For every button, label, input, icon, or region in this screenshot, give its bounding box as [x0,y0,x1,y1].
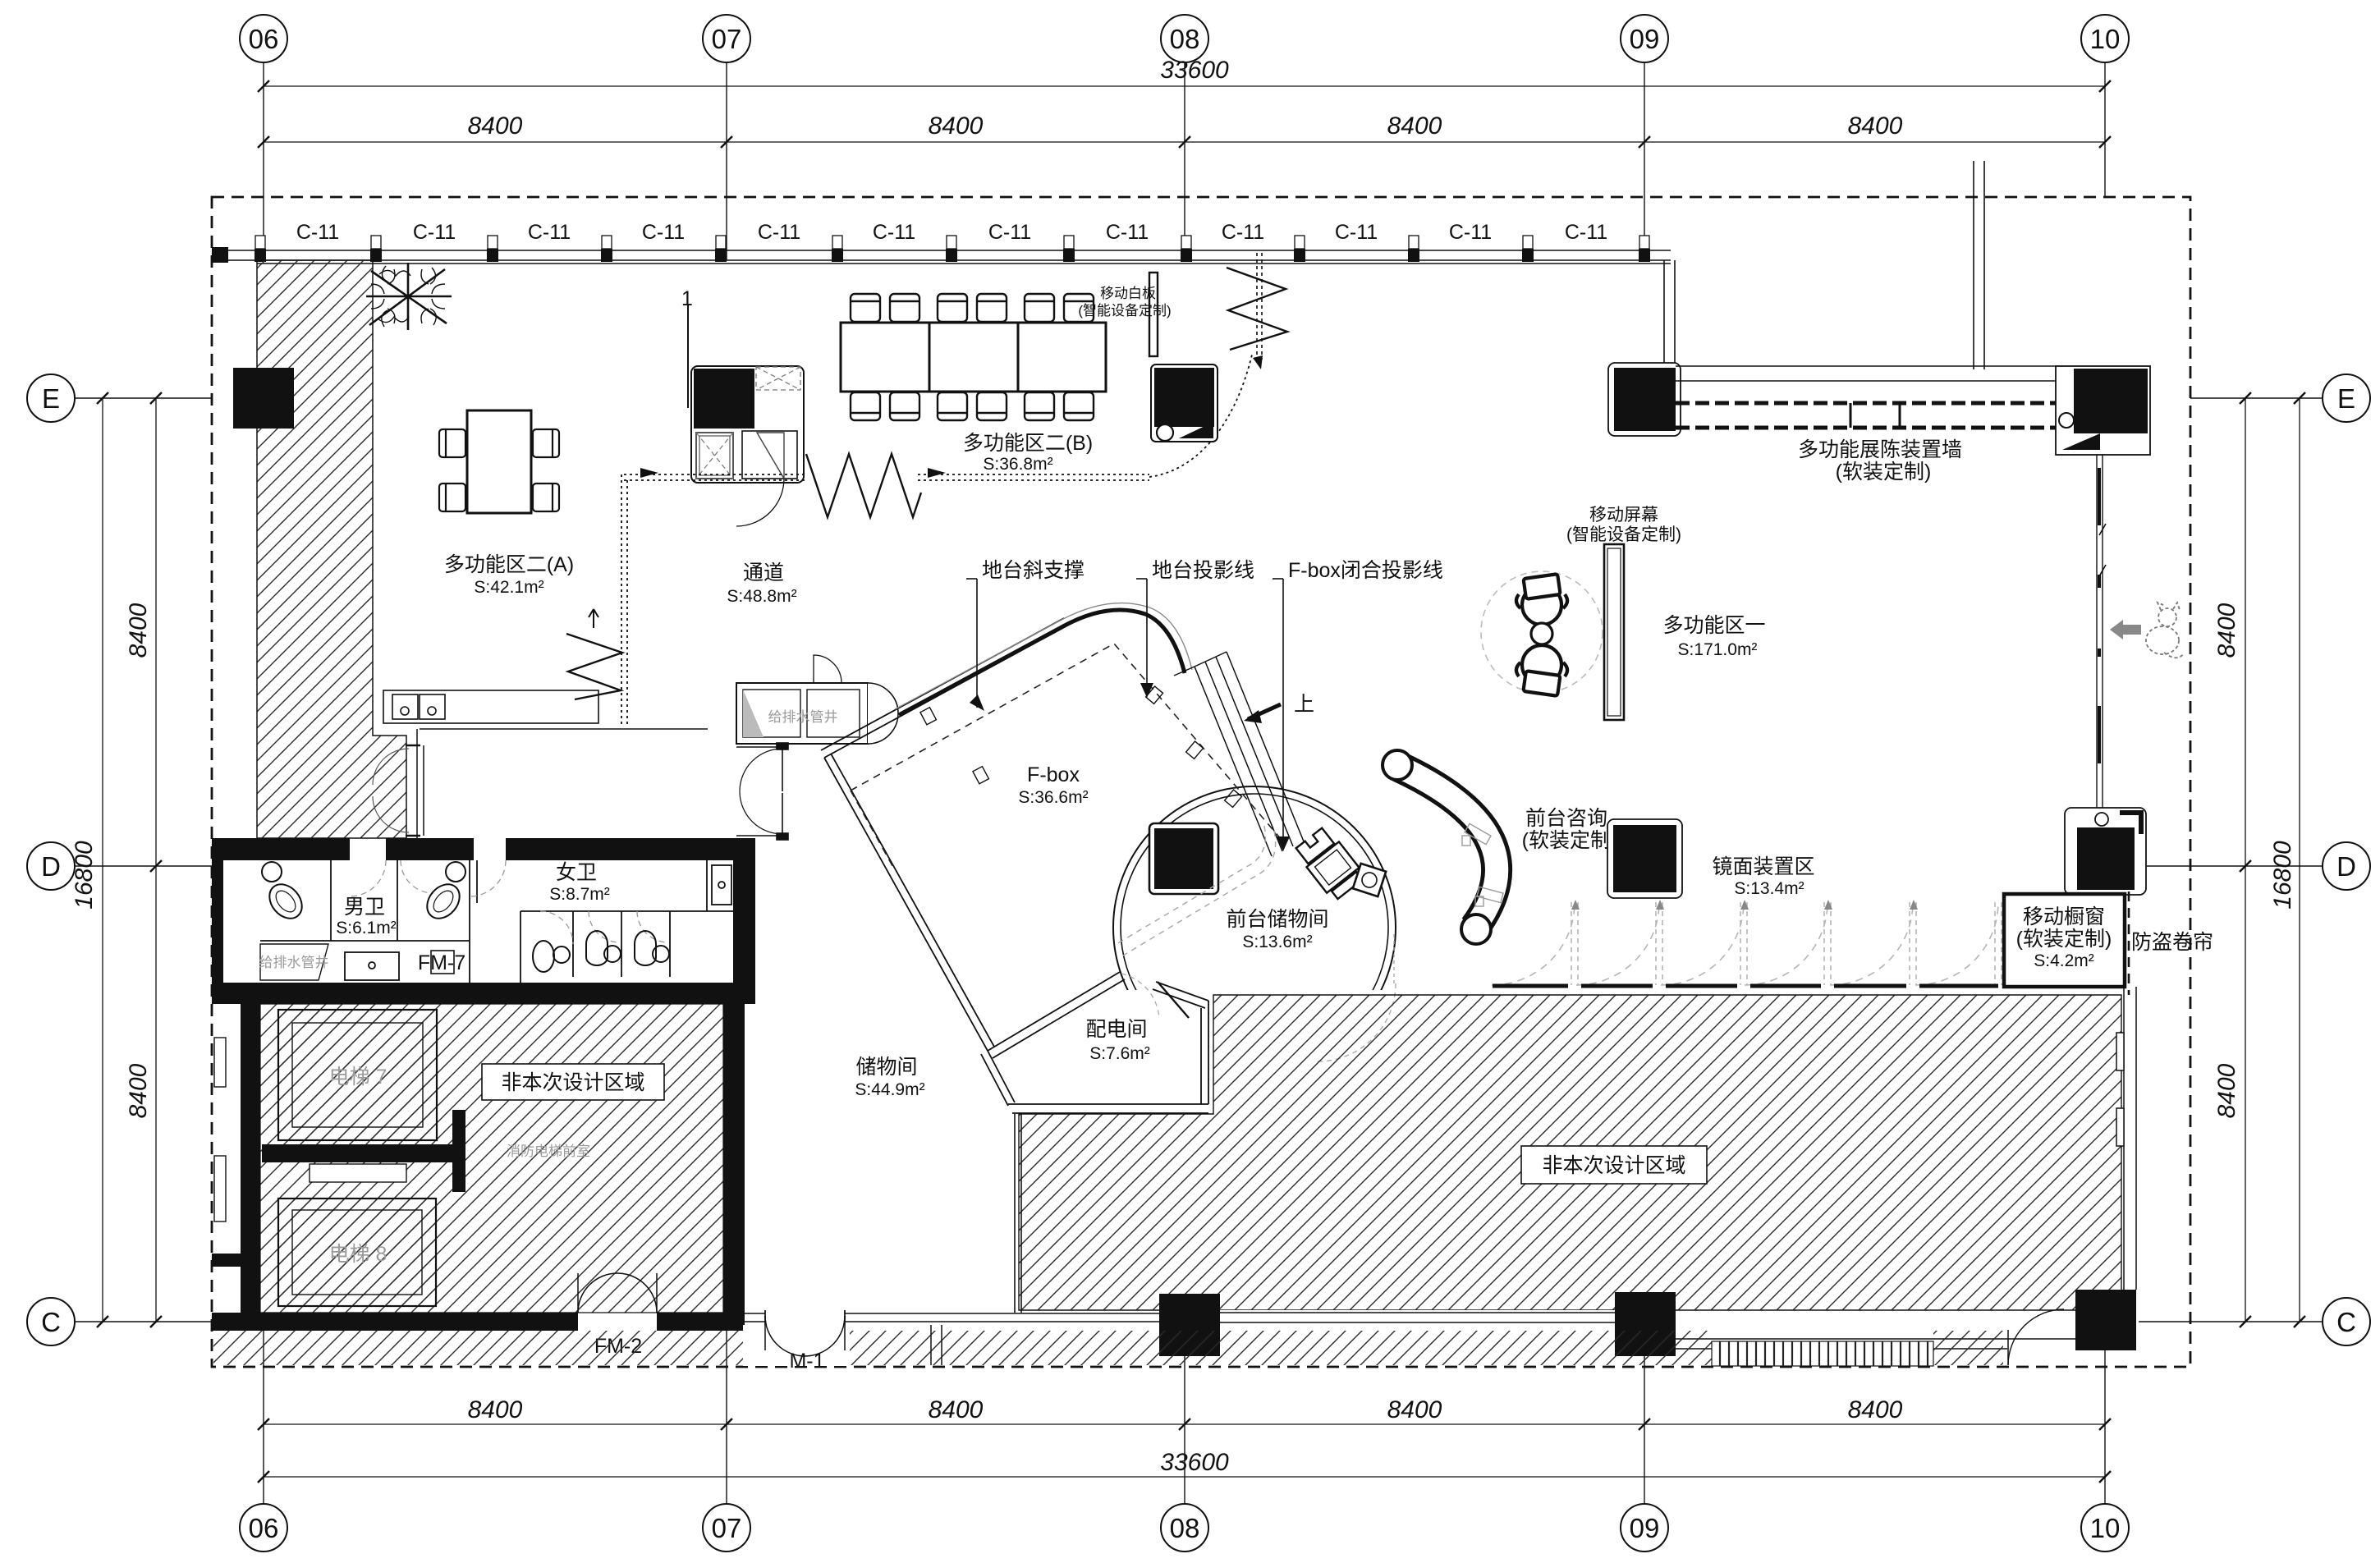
svg-text:8400: 8400 [1387,1396,1442,1423]
svg-text:8400: 8400 [2213,1063,2240,1118]
svg-text:D: D [41,851,61,882]
svg-text:8400: 8400 [1387,112,1442,140]
svg-text:男卫: 男卫 [344,896,385,919]
svg-text:07: 07 [712,1513,742,1543]
svg-text:S:7.6m²: S:7.6m² [1089,1044,1150,1063]
svg-text:C-11: C-11 [758,221,800,244]
svg-text:非本次设计区域: 非本次设计区域 [1542,1154,1685,1177]
svg-text:10: 10 [2090,24,2121,54]
svg-text:移动屏幕: 移动屏幕 [1589,506,1658,525]
svg-text:8400: 8400 [125,603,152,658]
svg-text:D: D [2336,851,2356,882]
svg-text:移动白板: 移动白板 [1100,286,1156,301]
svg-text:(智能设备定制): (智能设备定制) [1566,525,1681,544]
svg-text:前台储物间: 前台储物间 [1226,908,1328,931]
svg-text:S:13.4m²: S:13.4m² [1734,879,1804,898]
svg-text:F-box闭合投影线: F-box闭合投影线 [1288,559,1443,582]
svg-text:E: E [2337,383,2355,414]
svg-text:C-11: C-11 [1335,221,1378,244]
svg-text:C-11: C-11 [988,221,1031,244]
svg-text:10: 10 [2090,1513,2121,1543]
svg-text:06: 06 [249,24,279,54]
svg-text:S:6.1m²: S:6.1m² [336,919,397,937]
svg-text:8400: 8400 [1848,1396,1903,1423]
svg-text:C-11: C-11 [642,221,685,244]
svg-text:电梯 7: 电梯 7 [329,1066,387,1089]
svg-text:多功能区二(A): 多功能区二(A) [444,553,574,576]
svg-text:08: 08 [1170,24,1200,54]
svg-text:8400: 8400 [2213,603,2240,658]
svg-text:8400: 8400 [468,1396,523,1423]
svg-text:16800: 16800 [2269,841,2296,910]
svg-text:C-11: C-11 [528,221,571,244]
svg-text:地台投影线: 地台投影线 [1152,559,1254,582]
svg-text:8400: 8400 [929,1396,984,1423]
svg-text:S:8.7m²: S:8.7m² [549,885,610,904]
svg-text:非本次设计区域: 非本次设计区域 [501,1071,644,1094]
svg-text:8400: 8400 [125,1063,152,1118]
svg-text:(智能设备定制): (智能设备定制) [1078,303,1171,319]
svg-text:女卫: 女卫 [556,861,597,884]
svg-text:F-box: F-box [1027,763,1080,786]
svg-text:C-11: C-11 [413,221,456,244]
svg-text:07: 07 [712,24,742,54]
svg-text:防盗卷帘: 防盗卷帘 [2131,931,2213,954]
svg-text:镜面装置区: 镜面装置区 [1712,855,1814,878]
svg-text:C-11: C-11 [1106,221,1149,244]
svg-text:8400: 8400 [1848,112,1903,140]
svg-text:S:171.0m²: S:171.0m² [1678,640,1758,659]
svg-text:C-11: C-11 [296,221,339,244]
svg-text:C: C [41,1307,61,1337]
svg-text:S:48.8m²: S:48.8m² [727,587,796,606]
svg-text:上: 上 [1294,693,1314,716]
svg-text:多功能区一: 多功能区一 [1662,614,1765,637]
svg-text:多功能展陈装置墙: 多功能展陈装置墙 [1798,438,1962,461]
svg-text:1: 1 [681,287,693,310]
svg-text:储物间: 储物间 [855,1056,917,1079]
svg-text:多功能区二(B): 多功能区二(B) [963,432,1093,455]
svg-text:电梯 8: 电梯 8 [329,1243,387,1266]
svg-text:S:36.8m²: S:36.8m² [983,455,1052,474]
svg-text:C-11: C-11 [1565,221,1607,244]
svg-text:前台咨询: 前台咨询 [1525,807,1607,830]
svg-text:(软装定制): (软装定制) [2016,928,2112,951]
svg-text:给排水管井: 给排水管井 [259,955,329,970]
svg-text:08: 08 [1170,1513,1200,1543]
svg-text:地台斜支撑: 地台斜支撑 [982,559,1085,582]
svg-text:消防电梯前室: 消防电梯前室 [507,1144,590,1159]
svg-text:C: C [2336,1307,2356,1337]
svg-text:给排水管井: 给排水管井 [768,709,838,725]
svg-text:E: E [42,383,60,414]
svg-text:(软装定制): (软装定制) [1836,461,1932,484]
svg-text:09: 09 [1630,1513,1660,1543]
svg-text:C-11: C-11 [873,221,915,244]
svg-text:S:36.6m²: S:36.6m² [1018,788,1088,807]
svg-text:S:44.9m²: S:44.9m² [855,1080,924,1099]
svg-text:S:42.1m²: S:42.1m² [474,578,543,597]
svg-text:M-1: M-1 [789,1350,824,1373]
svg-text:33600: 33600 [1160,57,1229,84]
svg-text:S:4.2m²: S:4.2m² [2034,951,2094,970]
svg-text:S:13.6m²: S:13.6m² [1242,933,1312,951]
svg-text:06: 06 [249,1513,279,1543]
svg-text:配电间: 配电间 [1085,1018,1147,1041]
svg-text:C-11: C-11 [1222,221,1264,244]
svg-text:FM-7: FM-7 [418,951,465,974]
svg-text:C-11: C-11 [1449,221,1492,244]
svg-text:移动橱窗: 移动橱窗 [2023,905,2105,928]
svg-text:通道: 通道 [743,561,784,584]
svg-text:(软装定制): (软装定制) [1522,829,1618,852]
svg-text:8400: 8400 [929,112,984,140]
svg-text:09: 09 [1630,24,1660,54]
svg-text:8400: 8400 [468,112,523,140]
svg-text:16800: 16800 [71,841,98,910]
svg-text:33600: 33600 [1160,1449,1229,1476]
